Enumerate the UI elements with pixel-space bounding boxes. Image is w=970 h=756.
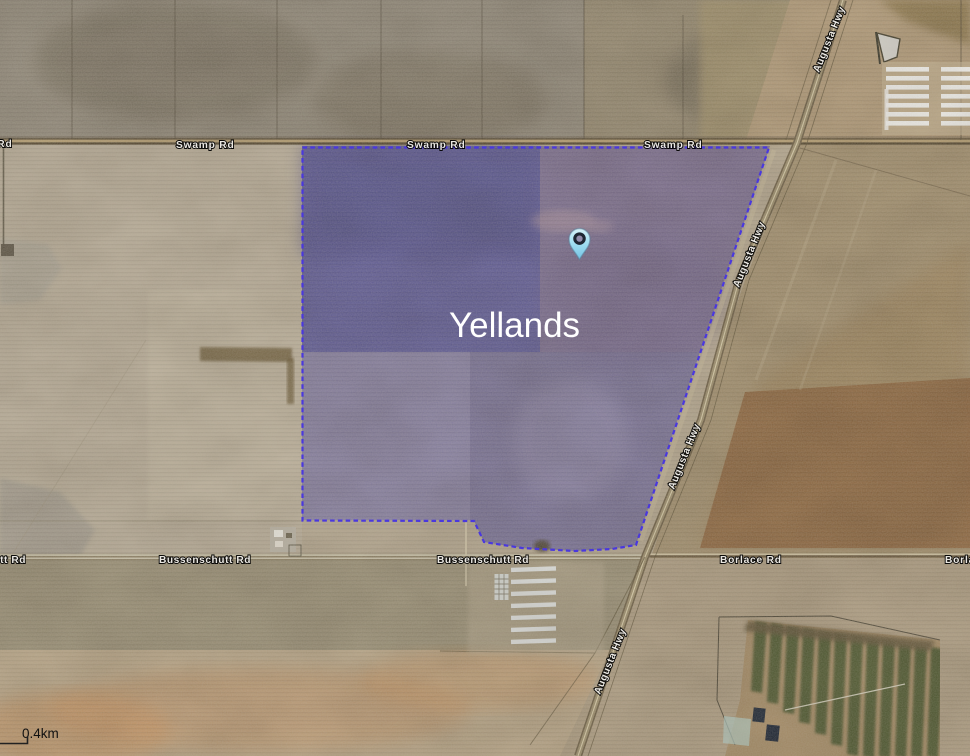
svg-text:Borlace Rd: Borlace Rd (945, 555, 970, 566)
svg-text:Bussenschutt Rd: Bussenschutt Rd (0, 555, 26, 566)
svg-text:Yellands: Yellands (449, 306, 580, 345)
svg-text:Bussenschutt Rd: Bussenschutt Rd (159, 555, 251, 566)
svg-text:Swamp Rd: Swamp Rd (176, 140, 234, 151)
svg-text:Bussenschutt Rd: Bussenschutt Rd (437, 555, 529, 566)
svg-text:Swamp Rd: Swamp Rd (644, 140, 702, 151)
svg-text:Swamp Rd: Swamp Rd (0, 139, 12, 150)
svg-text:Borlace Rd: Borlace Rd (720, 555, 782, 566)
svg-text:Swamp Rd: Swamp Rd (407, 140, 465, 151)
